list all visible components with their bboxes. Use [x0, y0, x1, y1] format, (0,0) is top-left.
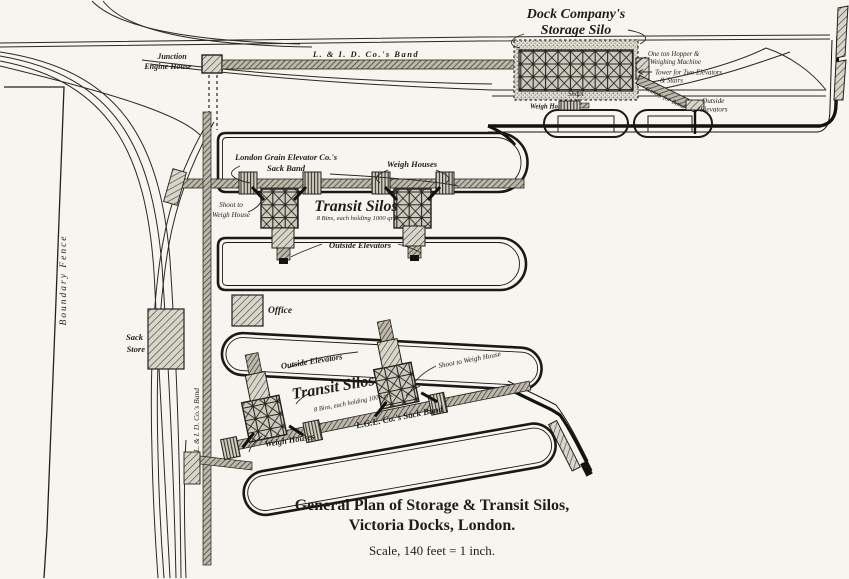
outside-elevators-mid-label: Outside Elevators	[329, 240, 392, 250]
tower-label-2: & Stairs	[660, 78, 683, 85]
boundary-fence-line	[4, 87, 64, 578]
dock-company-label-2: Storage Silo	[541, 23, 611, 38]
hopper-label-2: Weighing Machine	[650, 59, 701, 66]
plan-scale-note: Scale, 140 feet = 1 inch.	[369, 543, 495, 558]
weigh-ho-label: Weigh Ho.	[530, 104, 560, 111]
weigh-houses-top-label: Weigh Houses	[387, 159, 438, 169]
plan-drawing: Dock Company's Storage Silo L. & I. D. C…	[0, 0, 849, 579]
outside-elevators-bottom-label: Outside Elevators	[280, 351, 344, 371]
sack-store-label-1: Sack	[126, 332, 144, 342]
lid-band-vertical-label: L. & I. D. Co.'s Band	[192, 388, 201, 453]
junction-label-1: Junction	[156, 52, 187, 61]
plan-title-line2: Victoria Docks, London.	[349, 517, 516, 534]
transit-silos-top-label: Transit Silos	[314, 198, 397, 215]
office-label: Office	[268, 306, 293, 316]
lid-band-horizontal-structure	[222, 60, 516, 69]
plan-plate: Dock Company's Storage Silo L. & I. D. C…	[0, 0, 849, 579]
shoot-to-label-2: Weigh House	[212, 211, 251, 219]
boundary-fence-label: Boundary Fence	[59, 234, 69, 325]
outside-elevators-top-label-2: Elevators	[699, 106, 728, 114]
junction-label-2: Engine House	[143, 62, 192, 71]
plan-title-line1: General Plan of Storage & Transit Silos,	[295, 497, 570, 514]
lid-band-horizontal-label: L. & I. D. Co.'s Band	[312, 49, 419, 59]
storage-silo-structure	[514, 40, 649, 110]
sack-store-label-2: Store	[127, 344, 146, 354]
tower-label-1: Tower for Two Elevators	[655, 70, 722, 77]
hopper-label-1: One ton Hopper &	[648, 51, 700, 58]
shoot-label: Shoot	[568, 91, 585, 98]
office-structure	[232, 295, 263, 326]
sack-store-structure	[148, 309, 184, 369]
shoot-to-label-1: Shoot to	[219, 201, 243, 209]
dock-company-label-1: Dock Company's	[526, 7, 626, 22]
outside-elevators-top-label-1: Outside	[702, 97, 725, 105]
bins-top-label: 8 Bins, each holding 1000 qrs.	[317, 215, 398, 222]
shoot-to-weigh-house-bottom-label: Shoot to Weigh House	[438, 350, 503, 370]
grain-band-label-1: London Grain Elevator Co.'s	[234, 152, 338, 162]
grain-band-label-2: Sack Band	[267, 163, 306, 173]
